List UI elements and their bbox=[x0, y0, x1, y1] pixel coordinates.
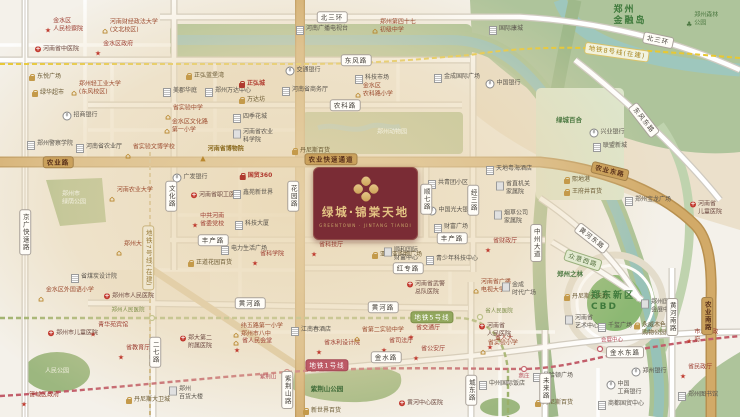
landmark-label: 郑州 金融岛 bbox=[613, 5, 646, 28]
road-label: 顺七路 bbox=[420, 184, 432, 215]
landmark-building: 科技大厦 bbox=[235, 220, 269, 230]
landmark-label: 郑州之林 bbox=[557, 270, 583, 278]
building-icon bbox=[296, 26, 304, 35]
landmark-star: 省公安厅 bbox=[413, 346, 445, 365]
landmark-shopred: 正弘城 bbox=[239, 80, 265, 88]
landmark-shop: 东悦广场 bbox=[29, 73, 61, 81]
landmark-building: 金成国际广场 bbox=[434, 73, 480, 83]
landmark-label: 省科学院 bbox=[260, 251, 284, 259]
landmark-building: 天地粤海酒店 bbox=[486, 165, 532, 175]
school-icon bbox=[473, 279, 479, 298]
landmark-building: 顺和国际 财富中心 bbox=[384, 247, 418, 262]
landmark-star: 金水区 人民检察院 bbox=[45, 18, 83, 37]
landmark-bank: 郑州银行 bbox=[631, 368, 666, 377]
landmark-shop: 熙地港 bbox=[564, 176, 590, 184]
road-label: 京广快速路 bbox=[19, 209, 31, 255]
landmark-area: 人民公园 bbox=[45, 367, 69, 375]
building-icon bbox=[426, 256, 434, 265]
bank-icon bbox=[606, 381, 615, 390]
landmark-star: 管城区政府 bbox=[21, 392, 59, 411]
landmark-shop: 正弘蓝堡湾 bbox=[186, 72, 224, 80]
landmark-building: 金成 时代广场 bbox=[502, 282, 536, 297]
star-icon bbox=[192, 213, 198, 232]
landmark-label: 人民公园 bbox=[45, 367, 69, 375]
landmark-school: 金水区 农科路小学 bbox=[355, 83, 393, 102]
landmark-building: 鑫苑新世界 bbox=[233, 189, 273, 199]
star-icon bbox=[311, 242, 317, 261]
bank-icon bbox=[631, 368, 640, 377]
shop-icon bbox=[29, 76, 35, 81]
shop-icon bbox=[564, 296, 570, 301]
landmark-bank: 中国银行 bbox=[485, 80, 520, 89]
building-icon bbox=[598, 401, 606, 410]
landmark-label: 河南省武警 总队医院 bbox=[415, 281, 445, 296]
landmark-label: 郑州图书馆 bbox=[688, 391, 718, 399]
road-label: 农业快速通道 bbox=[305, 153, 358, 165]
landmark-label: 金成国际广场 bbox=[444, 73, 480, 81]
landmark-star: 省交通厅 bbox=[408, 325, 440, 344]
landmark-label: 金水区 农科路小学 bbox=[363, 83, 393, 98]
landmark-label: 四季花城 bbox=[243, 113, 267, 121]
landmark-label: 郑州市儿童医院 bbox=[56, 329, 98, 337]
landmark-school: 郑州第四十七 初级中学 bbox=[372, 19, 416, 38]
landmark-label: 青华苑宾馆 bbox=[98, 322, 128, 330]
landmark-cross: 黄河中心医院 bbox=[399, 399, 443, 407]
landmark-label: 招商银行 bbox=[73, 112, 97, 120]
shop-icon bbox=[564, 191, 570, 196]
star-icon bbox=[487, 335, 493, 354]
landmark-label: 河南省农业厅 bbox=[86, 143, 122, 151]
building-icon bbox=[235, 221, 243, 230]
bank-icon bbox=[589, 129, 598, 138]
shop-icon bbox=[292, 150, 298, 155]
landmark-label: 省人大 bbox=[495, 335, 513, 343]
star-icon bbox=[485, 238, 491, 257]
landmark-building: 千玺广场 bbox=[598, 322, 632, 332]
shop-icon bbox=[564, 179, 570, 184]
landmark-building: 郑州 百货大楼 bbox=[169, 386, 203, 401]
landmark-star: 省教育厅 bbox=[118, 345, 150, 364]
road-label: 黄河南路 bbox=[666, 298, 678, 336]
school-icon bbox=[71, 81, 77, 100]
landmark-label: 郑州市 绿荫公园 bbox=[62, 191, 86, 206]
landmark-label: 省直机关 家属院 bbox=[506, 181, 530, 196]
landmark-label: 省煤炭设计院 bbox=[81, 273, 117, 281]
landmark-label: 河南财经政法大学 (文北校区) bbox=[110, 19, 158, 34]
star-icon bbox=[234, 338, 240, 357]
landmark-label: 中共河南 省委党校 bbox=[200, 213, 224, 228]
landmark-label: 烟草公司 家属院 bbox=[504, 210, 528, 225]
star-icon bbox=[686, 329, 692, 348]
school-icon bbox=[480, 340, 486, 359]
shop-icon bbox=[239, 83, 245, 88]
building-icon bbox=[233, 130, 241, 139]
building-icon bbox=[169, 387, 177, 396]
shop-icon bbox=[240, 175, 246, 180]
star-icon bbox=[45, 18, 51, 37]
landmark-label: 正弘蓝堡湾 bbox=[194, 72, 224, 80]
landmark-building: 河南省 艺术中心 bbox=[565, 315, 599, 330]
landmark-shopred: 国贸360 bbox=[240, 172, 273, 180]
cross-icon bbox=[104, 293, 110, 299]
building-icon bbox=[625, 197, 633, 206]
road-label: 北三环 bbox=[642, 31, 674, 49]
road-label: 农业南路 bbox=[701, 297, 713, 335]
building-icon bbox=[27, 141, 35, 150]
landmark-shop: 绿华超市 bbox=[32, 89, 64, 97]
landmark-label: 国际康城 bbox=[499, 25, 523, 33]
landmark-label: 万达坊 bbox=[247, 96, 265, 104]
transit-label: 省人民医院 bbox=[485, 309, 513, 315]
landmark-school: 河南财经政法大学 (文北校区) bbox=[102, 19, 158, 38]
landmark-building: 烟草公司 家属院 bbox=[494, 210, 528, 225]
landmark-building: 商都国贸中心 bbox=[598, 400, 644, 410]
school-icon bbox=[38, 287, 44, 306]
landmark-shop: 正道花园百货 bbox=[188, 259, 232, 267]
landmark-label: 郑州 百货大楼 bbox=[179, 386, 203, 401]
landmark-label: 财富广场 bbox=[444, 223, 468, 231]
landmark-label: 新世界百货 bbox=[311, 407, 341, 415]
landmark-star: 省科技厅 bbox=[311, 242, 343, 261]
landmark-label: 河南农业大学 bbox=[117, 187, 153, 195]
landmark-label: 河南省博物院 bbox=[208, 146, 244, 154]
school-icon bbox=[164, 119, 170, 138]
road-label: 未来路 bbox=[539, 373, 551, 404]
road-label: 城东路 bbox=[465, 375, 477, 406]
landmark-building: 河南省农业厅 bbox=[76, 143, 122, 153]
landmark-building: 青少年科技中心 bbox=[426, 255, 478, 265]
landmark-label: 熙地港 bbox=[572, 176, 590, 184]
landmark-cross: 郑大第二 附属医院 bbox=[180, 335, 212, 350]
landmark-bank: 中国 工商银行 bbox=[606, 381, 641, 396]
landmark-cross: 郑州市人民医院 bbox=[104, 292, 154, 300]
landmark-area: 郑州 金融岛 bbox=[613, 5, 646, 28]
cross-icon bbox=[399, 400, 405, 406]
building-icon bbox=[565, 316, 573, 325]
landmark-label: 管城区政府 bbox=[29, 392, 59, 400]
shop-icon bbox=[32, 92, 38, 97]
shop-icon bbox=[186, 75, 192, 80]
project-card: 绿城·锦棠天地 GREENTOWN · JINTANG TIANDI bbox=[313, 167, 418, 240]
road-label: 中州大道 bbox=[530, 224, 542, 262]
star-icon bbox=[413, 346, 419, 365]
landmark-building: 省煤炭设计院 bbox=[71, 273, 117, 283]
landmark-building: 美郡华庭 bbox=[163, 87, 197, 97]
landmark-shop: 永威木色 购物公园 bbox=[634, 322, 666, 337]
landmark-museum: 河南省博物院 bbox=[200, 146, 243, 165]
star-icon bbox=[252, 251, 258, 270]
landmark-bank: 交通银行 bbox=[285, 67, 320, 76]
building-icon bbox=[291, 327, 299, 336]
transit-label: 地铁8号线(在建) bbox=[584, 42, 650, 62]
landmark-label: 广发银行 bbox=[183, 174, 207, 182]
landmark-building: 四季花城 bbox=[233, 113, 267, 123]
landmark-label: 东悦广场 bbox=[37, 73, 61, 81]
landmark-label: 省实验中学 bbox=[173, 105, 203, 113]
landmark-label: 王府井百货 bbox=[572, 188, 602, 196]
bank-icon bbox=[62, 112, 71, 121]
road-label: 黄河路 bbox=[368, 301, 399, 313]
shop-icon bbox=[126, 399, 132, 404]
star-icon bbox=[316, 340, 322, 359]
landmark-label: 河南省 艺术中心 bbox=[575, 315, 599, 330]
landmark-label: 联盟新城 bbox=[603, 142, 627, 150]
shop-icon bbox=[372, 254, 378, 259]
location-map: 北三环北三环东风路东风东路农科路农业路农业快速通道农业东路农业南路文化路花园路经… bbox=[0, 0, 740, 417]
landmark-label: 河南广播电视台 bbox=[306, 25, 348, 33]
building-icon bbox=[496, 182, 504, 191]
landmark-label: 江南春酒店 bbox=[301, 326, 331, 334]
building-icon bbox=[384, 248, 392, 257]
building-icon bbox=[486, 166, 494, 175]
landmark-label: 省实验文博学校 bbox=[133, 144, 175, 152]
transit-label: 紫荆山 bbox=[260, 375, 277, 381]
landmark-label: 正弘城 bbox=[247, 80, 265, 88]
building-icon bbox=[641, 300, 649, 309]
landmark-label: 金成 时代广场 bbox=[512, 282, 536, 297]
landmark-label: 美郡华庭 bbox=[173, 87, 197, 95]
landmark-label: 交通银行 bbox=[296, 67, 320, 75]
landmark-building: 联盟新城 bbox=[593, 142, 627, 152]
landmark-label: 商都国贸中心 bbox=[608, 400, 644, 408]
transit-label: 燕庄 bbox=[518, 374, 529, 380]
landmark-area: 郑州市 绿荫公园 bbox=[62, 191, 86, 206]
road-label: 花园路 bbox=[287, 181, 299, 212]
road-label: 二七路 bbox=[149, 337, 161, 368]
landmark-shop: 王府井百货 bbox=[564, 188, 602, 196]
school-icon bbox=[354, 327, 360, 346]
road-label: 金水东路 bbox=[606, 346, 644, 358]
landmark-label: 金水区外国语小学 bbox=[46, 287, 94, 295]
landmark-label: 河南省农业 科学院 bbox=[243, 129, 273, 144]
road-label: 经三路 bbox=[467, 185, 479, 216]
cross-icon bbox=[191, 192, 197, 198]
landmark-label: 郑州万达中心 bbox=[215, 87, 251, 95]
landmark-area: 郑州之林 bbox=[557, 270, 583, 278]
landmark-building: 江南春酒店 bbox=[291, 326, 331, 336]
landmark-label: 鑫苑新世界 bbox=[243, 189, 273, 197]
star-icon bbox=[408, 325, 414, 344]
landmark-star: 省人民会堂 bbox=[234, 338, 272, 357]
shop-icon bbox=[239, 99, 245, 104]
landmark-cross: 河南省中医院 bbox=[35, 45, 79, 53]
road-label: 文化路 bbox=[165, 181, 177, 212]
building-icon bbox=[502, 283, 510, 292]
landmark-area: 郑州动物园 bbox=[377, 128, 407, 136]
landmark-building: 河南广播电视台 bbox=[296, 25, 348, 35]
landmark-label: 国贸360 bbox=[248, 172, 273, 180]
landmark-tree: 郑州森林公园 bbox=[686, 12, 722, 31]
landmark-school: 金水区外国语小学 bbox=[38, 287, 94, 306]
cross-icon bbox=[690, 202, 696, 208]
landmark-label: 青少年科技中心 bbox=[436, 255, 478, 263]
star-icon bbox=[680, 364, 686, 383]
landmark-label: 天地粤海酒店 bbox=[496, 165, 532, 173]
landmark-star: 省人大 bbox=[487, 335, 513, 354]
landmark-area: 绿城百合 bbox=[556, 116, 582, 124]
building-icon bbox=[479, 381, 487, 390]
landmark-label: 纬五路第一小学 bbox=[241, 323, 283, 331]
star-icon bbox=[95, 41, 101, 60]
landmark-label: 省财政厅 bbox=[493, 238, 517, 246]
landmark-area: 紫荆山公园 bbox=[311, 385, 344, 393]
landmark-label: 省交通厅 bbox=[416, 325, 440, 333]
landmark-label: 金水区文化路 第一小学 bbox=[172, 119, 208, 134]
landmark-label: 黄河中心医院 bbox=[407, 399, 443, 407]
project-logo-icon bbox=[351, 175, 379, 203]
landmark-building: 郑州警察学院 bbox=[27, 140, 73, 150]
road-label: 众意西路 bbox=[563, 249, 603, 272]
building-icon bbox=[233, 114, 241, 123]
building-icon bbox=[489, 26, 497, 35]
road-label: 北三环 bbox=[317, 11, 348, 23]
landmark-label: 郑州银行 bbox=[642, 368, 666, 376]
building-icon bbox=[163, 88, 171, 97]
road-label: 紫荆山路 bbox=[281, 371, 293, 409]
road-label: 黄河东路 bbox=[573, 222, 610, 254]
landmark-label: 郑州第四十七 初级中学 bbox=[380, 19, 416, 34]
landmark-star: 金水区政府 bbox=[95, 41, 133, 60]
road-label: 丰产路 bbox=[198, 234, 229, 246]
landmark-label: 郑州森林公园 bbox=[694, 12, 722, 27]
landmark-star: 中共河南 省委党校 bbox=[192, 213, 224, 232]
landmark-label: 金水区 人民检察院 bbox=[53, 18, 83, 33]
landmark-label: 中国 工商银行 bbox=[617, 381, 641, 396]
landmark-school: 河南农业大学 bbox=[109, 187, 153, 206]
landmark-label: 永威木色 购物公园 bbox=[642, 322, 666, 337]
landmark-label: 省人民会堂 bbox=[242, 338, 272, 346]
transit-label: 会展中心 bbox=[601, 338, 623, 344]
project-name-en: GREENTOWN · JINTANG TIANDI bbox=[319, 223, 412, 228]
building-icon bbox=[221, 246, 229, 255]
cross-icon bbox=[479, 324, 485, 330]
landmark-building: 郑州宝龙广场 bbox=[625, 196, 671, 206]
landmark-label: 河南省中医院 bbox=[43, 45, 79, 53]
landmark-school: 省实验文博学校 bbox=[125, 144, 175, 163]
landmark-shop: 丹尼斯大卫城 bbox=[126, 396, 170, 404]
landmark-label: 郑大第二 附属医院 bbox=[188, 335, 212, 350]
landmark-label: 省科技厅 bbox=[319, 242, 343, 250]
landmark-label: 金水区政府 bbox=[103, 41, 133, 49]
building-icon bbox=[593, 143, 601, 152]
school-icon bbox=[102, 19, 108, 38]
school-icon bbox=[116, 241, 122, 260]
building-icon bbox=[76, 144, 84, 153]
school-icon bbox=[109, 187, 115, 206]
landmark-cross: 河南省 儿童医院 bbox=[690, 201, 722, 216]
building-icon bbox=[678, 392, 686, 401]
cross-icon bbox=[180, 336, 186, 342]
road-label: 农业东路 bbox=[590, 161, 630, 181]
project-name: 绿城·锦棠天地 bbox=[322, 204, 409, 220]
star-icon bbox=[118, 345, 124, 364]
cross-icon bbox=[407, 282, 413, 288]
landmark-cross: 郑州市儿童医院 bbox=[48, 329, 98, 337]
building-icon bbox=[598, 323, 606, 332]
road-label: 东风路 bbox=[341, 54, 372, 66]
landmark-label: 郑东新区 CBD bbox=[591, 291, 635, 314]
landmark-label: 科技大厦 bbox=[245, 220, 269, 228]
landmark-building: 河南省商务厅 bbox=[282, 86, 328, 96]
transit-label: 郑州人民医院 bbox=[111, 308, 144, 314]
road-label: 农业路 bbox=[43, 156, 74, 168]
building-icon bbox=[205, 88, 213, 97]
landmark-building: 共青团小区 bbox=[428, 179, 468, 189]
bank-icon bbox=[285, 67, 294, 76]
landmark-label: 省教育厅 bbox=[126, 345, 150, 353]
landmark-school: 金水区文化路 第一小学 bbox=[164, 119, 208, 138]
museum-icon bbox=[200, 146, 205, 165]
landmark-label: 中国银行 bbox=[496, 80, 520, 88]
transit-label: 地铁1号线 bbox=[305, 359, 348, 371]
landmark-building: 国际康城 bbox=[489, 25, 523, 35]
landmark-label: 河南省商务厅 bbox=[292, 86, 328, 94]
landmark-label: 正道花园百货 bbox=[196, 259, 232, 267]
star-icon bbox=[21, 392, 27, 411]
landmark-label: 顺和国际 财富中心 bbox=[394, 247, 418, 262]
landmark-label: 共青团小区 bbox=[438, 179, 468, 187]
building-icon bbox=[494, 211, 502, 220]
shop-icon bbox=[634, 325, 640, 330]
shop-icon bbox=[303, 410, 309, 415]
landmark-label: 紫荆山公园 bbox=[311, 385, 344, 393]
landmark-label: 郑州警察学院 bbox=[37, 140, 73, 148]
building-icon bbox=[233, 190, 241, 199]
landmark-school: 郑州轻工业大学 (东风校区) bbox=[71, 81, 121, 100]
road-label: 东风东路 bbox=[628, 101, 660, 138]
landmark-label: 郑州宝龙广场 bbox=[635, 196, 671, 204]
landmark-bank: 广发银行 bbox=[172, 174, 207, 183]
transit-label: 地铁5号线 bbox=[410, 311, 453, 323]
road-label: 黄河路 bbox=[235, 297, 266, 309]
landmark-star: 省科学院 bbox=[252, 251, 284, 270]
school-icon bbox=[125, 144, 131, 163]
landmark-label: 绿城百合 bbox=[556, 116, 582, 124]
building-icon bbox=[71, 274, 79, 283]
bank-icon bbox=[485, 80, 494, 89]
cross-icon bbox=[35, 46, 41, 52]
landmark-building: 中州国际饭店 bbox=[479, 380, 525, 390]
landmark-label: 河南省 儿童医院 bbox=[698, 201, 722, 216]
landmark-label: 科技市场 bbox=[365, 74, 389, 82]
landmark-label: 千玺广场 bbox=[608, 322, 632, 330]
landmark-shop: 新世界百货 bbox=[303, 407, 341, 415]
landmark-building: 郑州图书馆 bbox=[678, 391, 718, 401]
landmark-label: 省第二实验中学 bbox=[362, 327, 404, 335]
road-label: 金水路 bbox=[371, 351, 402, 363]
landmark-label: 郑州轻工业大学 (东风校区) bbox=[79, 81, 121, 96]
landmark-shop: 万达坊 bbox=[239, 96, 265, 104]
landmark-label: 丹尼斯大卫城 bbox=[134, 396, 170, 404]
transit-label: 地铁7号线(在建) bbox=[142, 225, 154, 290]
cross-icon bbox=[48, 330, 54, 336]
road-label: 红专路 bbox=[393, 262, 424, 274]
landmark-star: 省民政厅 bbox=[680, 364, 712, 383]
building-icon bbox=[282, 87, 290, 96]
road-label: 丰产路 bbox=[437, 232, 468, 244]
landmark-label: 郑州市人民医院 bbox=[112, 292, 154, 300]
landmark-bank: 兴业银行 bbox=[589, 129, 624, 138]
landmark-label: 省民政厅 bbox=[688, 364, 712, 372]
landmark-label: 兴业银行 bbox=[600, 129, 624, 137]
landmark-label: 中州国际饭店 bbox=[489, 380, 525, 388]
landmark-star: 省财政厅 bbox=[485, 238, 517, 257]
landmark-building: 河南省农业 科学院 bbox=[233, 129, 273, 144]
landmark-label: 郑州动物园 bbox=[377, 128, 407, 136]
school-icon bbox=[372, 19, 378, 38]
road-label: 农科路 bbox=[330, 99, 361, 111]
tree-icon bbox=[686, 12, 692, 31]
